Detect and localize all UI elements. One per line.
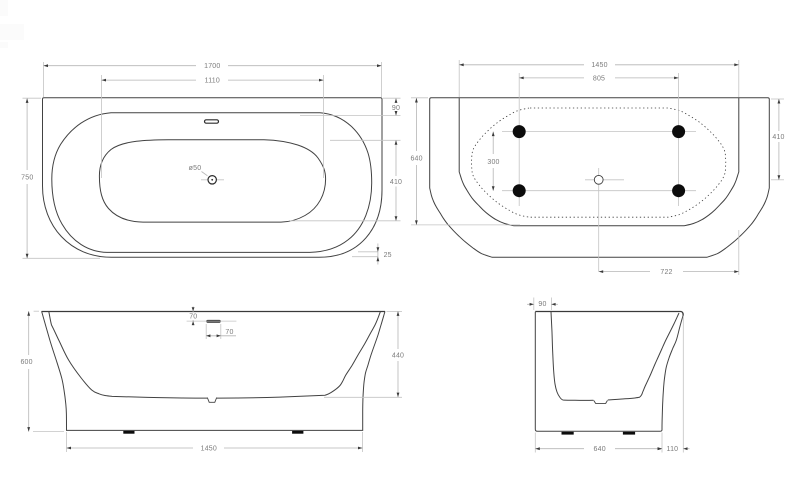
svg-text:90: 90 xyxy=(392,105,400,112)
svg-text:805: 805 xyxy=(593,75,605,82)
svg-text:410: 410 xyxy=(772,134,784,141)
svg-text:750: 750 xyxy=(21,174,33,181)
svg-text:600: 600 xyxy=(20,359,32,366)
svg-text:1700: 1700 xyxy=(204,63,220,70)
svg-text:ø50: ø50 xyxy=(189,165,202,172)
svg-text:722: 722 xyxy=(660,269,672,276)
svg-text:1450: 1450 xyxy=(591,62,607,69)
svg-text:70: 70 xyxy=(189,313,197,320)
svg-text:640: 640 xyxy=(410,155,422,162)
svg-text:300: 300 xyxy=(487,159,499,166)
svg-text:70: 70 xyxy=(225,329,233,336)
svg-text:25: 25 xyxy=(384,252,392,259)
svg-text:640: 640 xyxy=(594,446,606,453)
svg-text:110: 110 xyxy=(667,446,679,453)
svg-text:440: 440 xyxy=(392,353,404,360)
svg-text:1450: 1450 xyxy=(201,445,217,452)
svg-text:1110: 1110 xyxy=(205,78,220,85)
svg-text:90: 90 xyxy=(538,301,546,308)
svg-text:410: 410 xyxy=(390,179,402,186)
